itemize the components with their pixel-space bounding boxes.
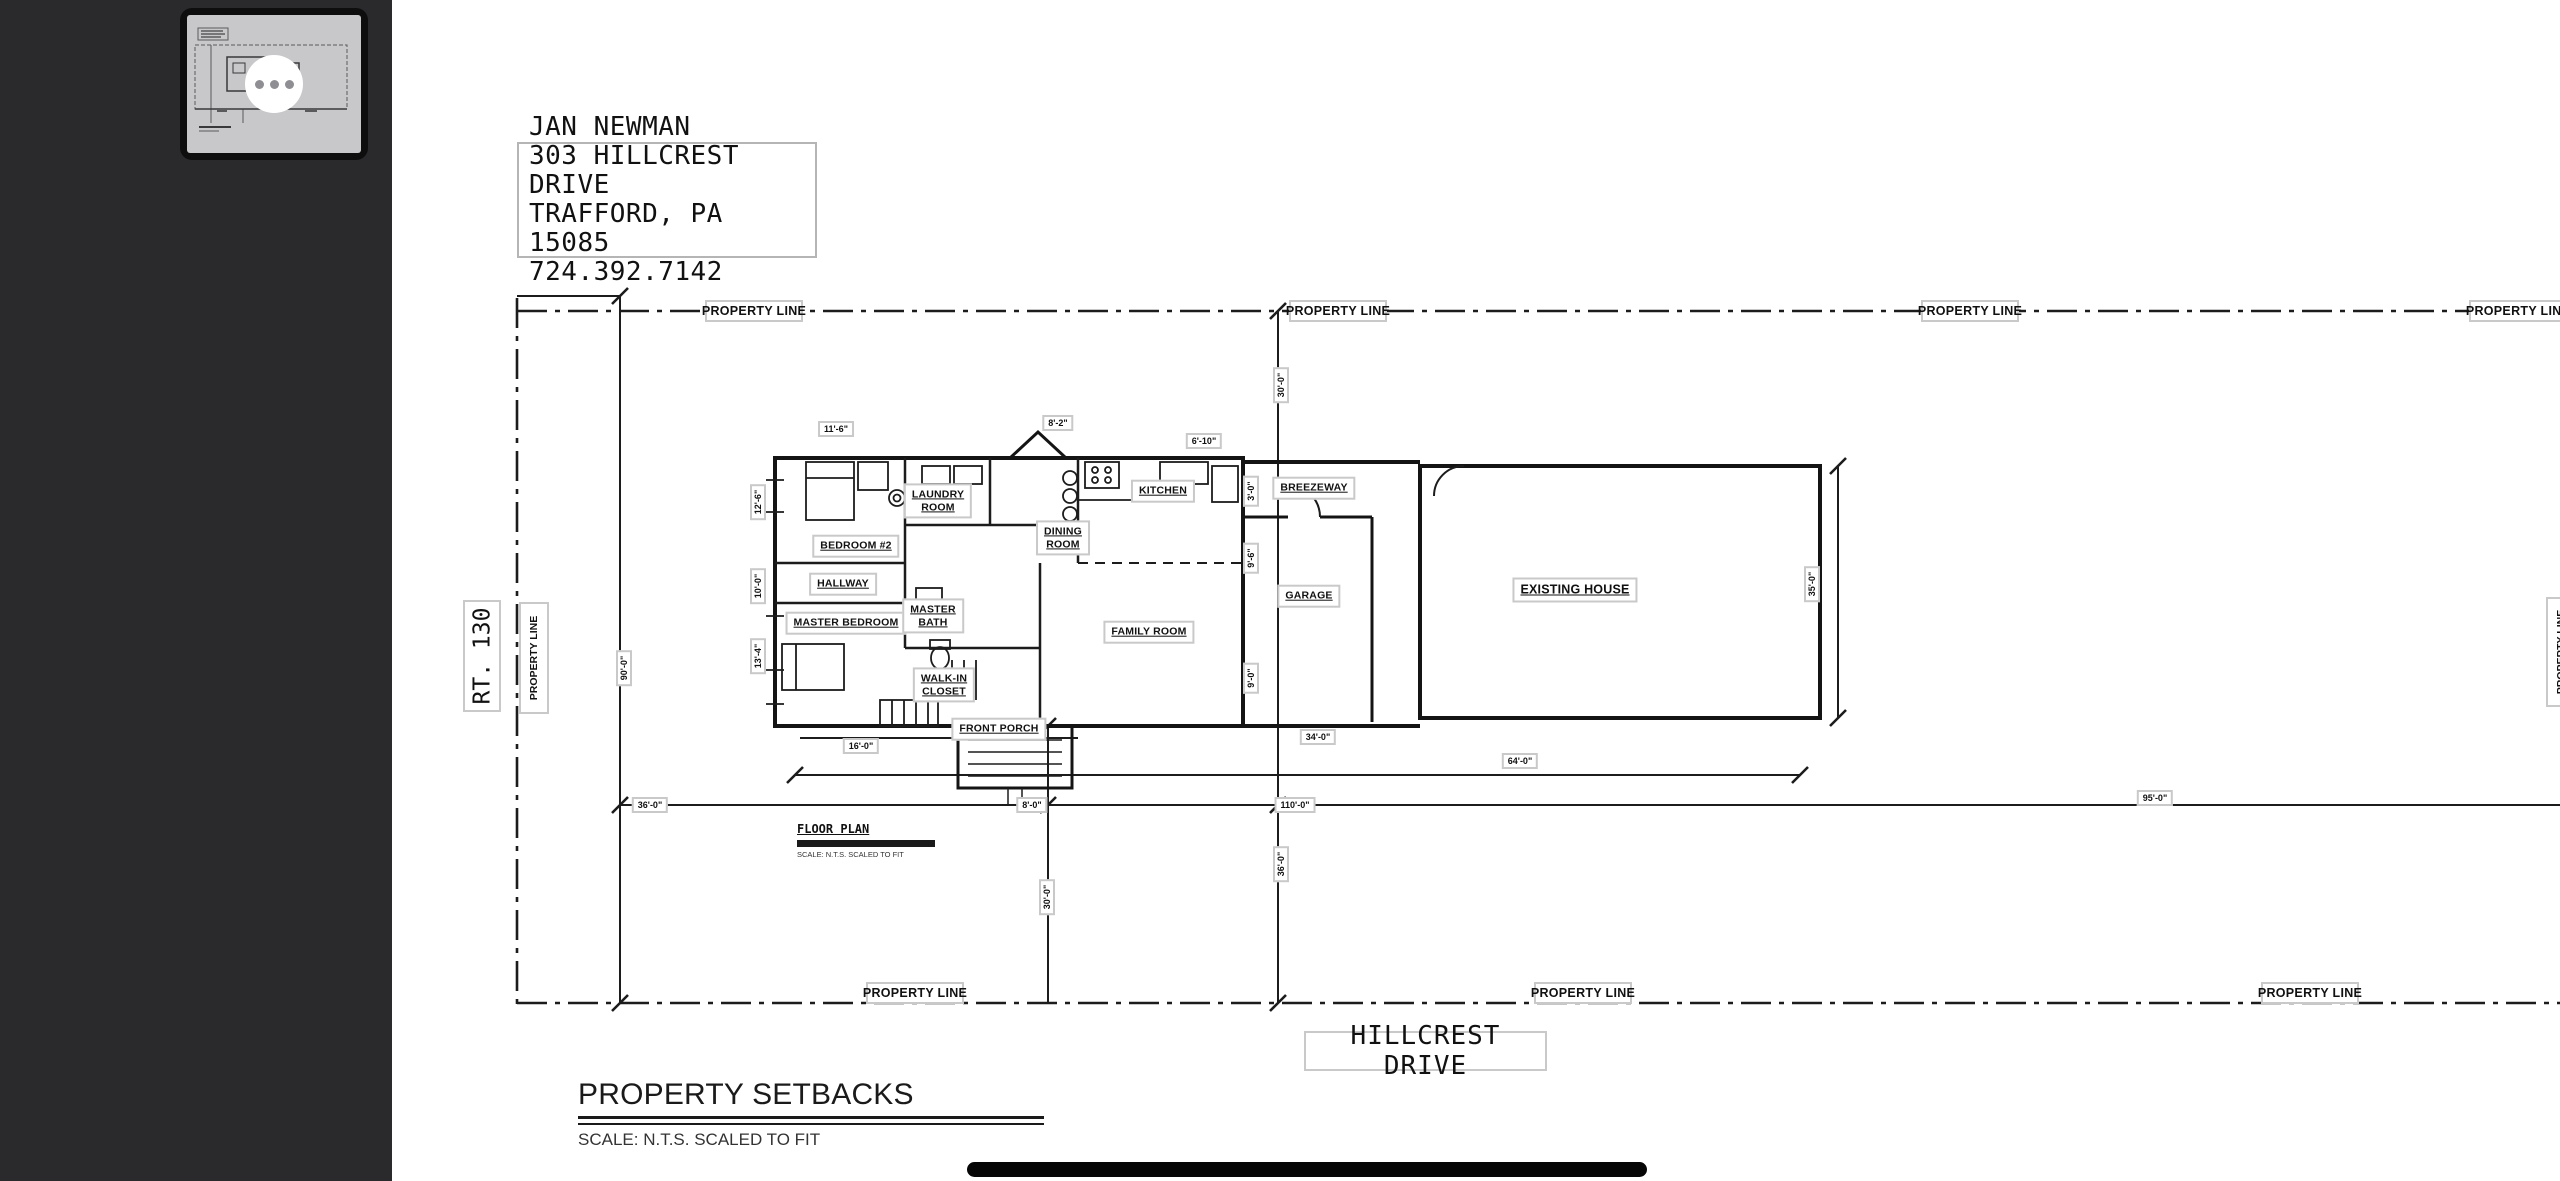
property-line-label: PROPERTY LINE [1289, 300, 1387, 322]
room-label-breezeway: BREEZEWAY [1272, 477, 1355, 500]
dimension-label: 12'-6" [750, 484, 766, 520]
room-label-walkin-closet: WALK-IN CLOSET [913, 667, 975, 702]
property-line-label: PROPERTY LINE [1534, 982, 1632, 1004]
dimension-label: 90'-0" [616, 650, 632, 686]
owner-name: JAN NEWMAN [529, 113, 815, 142]
dimension-label: 11'-6" [818, 421, 854, 437]
pdf-viewer: JAN NEWMAN 303 HILLCREST DRIVE TRAFFORD,… [0, 0, 2560, 1181]
dimension-ticks [612, 288, 1846, 1011]
room-label-existing-house: EXISTING HOUSE [1512, 578, 1637, 603]
sheet-title: PROPERTY SETBACKS [578, 1078, 914, 1112]
dimension-label: 34'-0" [1300, 729, 1336, 745]
room-label-dining: DINING ROOM [1036, 520, 1090, 555]
property-line-label: PROPERTY LINE [705, 300, 803, 322]
dimension-label: 13'-4" [750, 638, 766, 674]
property-line-label: PROPERTY LINE [1921, 300, 2019, 322]
home-indicator[interactable] [967, 1162, 1647, 1177]
dimension-label: 9'-6" [1243, 542, 1259, 573]
dimension-label: 64'-0" [1502, 753, 1538, 769]
dimension-label: 6'-10" [1186, 433, 1222, 449]
room-label-family-room: FAMILY ROOM [1103, 621, 1194, 644]
room-label-bedroom2: BEDROOM #2 [812, 535, 899, 558]
room-label-kitchen: KITCHEN [1131, 480, 1195, 503]
dimension-label: 36'-0" [1273, 846, 1289, 882]
property-line-label: PROPERTY LINE [2469, 300, 2560, 322]
room-label-garage: GARAGE [1277, 585, 1340, 608]
route-130-label: RT. 130 [463, 600, 501, 712]
dimension-label: 10'-0" [750, 568, 766, 604]
dimension-label: 8'-0" [1016, 797, 1047, 813]
owner-city: TRAFFORD, PA 15085 [529, 200, 815, 258]
dimension-label: 30'-0" [1039, 879, 1055, 915]
room-label-laundry: LAUNDRY ROOM [904, 483, 972, 518]
dimension-label: 35'-0" [1804, 566, 1820, 602]
property-boundary-lines [517, 298, 2560, 1008]
sheet-title-underline [578, 1116, 1044, 1119]
floor-plan-title-bar [797, 840, 935, 847]
dimension-label: 8'-2" [1042, 415, 1073, 431]
dimension-lines [517, 296, 2560, 1003]
owner-phone: 724.392.7142 [529, 258, 815, 287]
street-label: HILLCREST DRIVE [1304, 1031, 1547, 1071]
property-line-label: PROPERTY LINE [866, 982, 964, 1004]
property-line-label-vertical: PROPERTY LINE [519, 602, 549, 714]
owner-street: 303 HILLCREST DRIVE [529, 142, 815, 200]
dimension-label: 110'-0" [1275, 797, 1316, 813]
room-label-master-bath: MASTER BATH [902, 598, 964, 633]
property-line-label: PROPERTY LINE [2261, 982, 2359, 1004]
dimension-label: 16'-0" [843, 738, 879, 754]
dimension-label: 9'-0" [1243, 662, 1259, 693]
floor-plan-title: FLOOR PLAN [797, 822, 869, 836]
property-line-label-vertical: PROPERTY LINE [2546, 597, 2560, 707]
floor-plan-scale-note: SCALE: N.T.S. SCALED TO FIT [797, 850, 904, 859]
dimension-label: 95'-0" [2137, 790, 2173, 806]
owner-address-block: JAN NEWMAN 303 HILLCREST DRIVE TRAFFORD,… [517, 142, 817, 258]
dimension-label: 30'-0" [1273, 367, 1289, 403]
sheet-scale-note: SCALE: N.T.S. SCALED TO FIT [578, 1130, 820, 1150]
dimension-label: 36'-0" [632, 797, 668, 813]
room-label-front-porch: FRONT PORCH [951, 718, 1046, 741]
dimension-label: 3'-0" [1243, 475, 1259, 506]
room-label-hallway: HALLWAY [809, 573, 877, 596]
sheet-title-underline [578, 1123, 1044, 1125]
room-label-master-bedroom: MASTER BEDROOM [786, 612, 907, 635]
